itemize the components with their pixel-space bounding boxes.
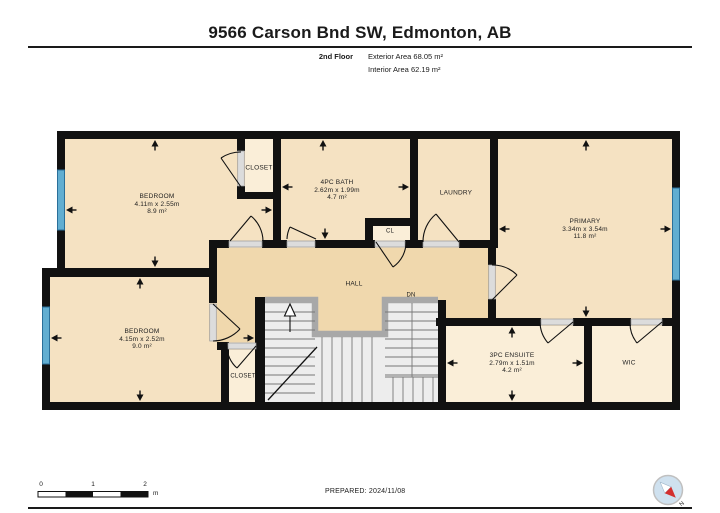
stairs-down-label: DN xyxy=(406,292,415,300)
floorplan-page: 9566 Carson Bnd SW, Edmonton, AB 2nd Flo… xyxy=(0,0,720,513)
scale-bar: 0 1 2 m xyxy=(30,478,170,506)
room-label-primary: PRIMARY3.34m x 3.54m11.8 m² xyxy=(562,218,608,241)
room-label-wic: WIC xyxy=(622,359,635,367)
room-label-laundry: LAUNDRY xyxy=(440,189,472,197)
scale-bar-graphic xyxy=(30,478,170,506)
footer-rule xyxy=(28,507,692,509)
compass-north-label: N xyxy=(679,501,686,508)
scale-unit: m xyxy=(153,490,158,497)
window-bedroom2 xyxy=(43,307,50,364)
compass-icon: N xyxy=(649,472,687,510)
scale-tick-2: 2 xyxy=(143,481,147,488)
room-label-bath: 4PC BATH2.62m x 1.99m4.7 m² xyxy=(314,179,360,202)
room-label-bedroom2: BEDROOM4.15m x 2.52m9.0 m² xyxy=(119,328,165,351)
room-label-cl: CL xyxy=(386,228,394,236)
room-label-closet1: CLOSET xyxy=(245,164,272,172)
window-bedroom1 xyxy=(58,170,65,230)
room-label-closet2: CLOSET xyxy=(230,373,255,381)
prepared-date: PREPARED: 2024/11/08 xyxy=(325,488,405,495)
room-label-ensuite: 3PC ENSUITE2.79m x 1.51m4.2 m² xyxy=(489,352,535,375)
room-label-hall: HALL xyxy=(345,280,362,288)
window-primary xyxy=(673,188,680,280)
room-label-bedroom1: BEDROOM4.11m x 2.55m8.9 m² xyxy=(134,193,179,216)
floorplan-drawing xyxy=(0,0,720,513)
scale-tick-0: 0 xyxy=(39,481,43,488)
stairwell xyxy=(265,297,438,402)
scale-tick-1: 1 xyxy=(91,481,95,488)
